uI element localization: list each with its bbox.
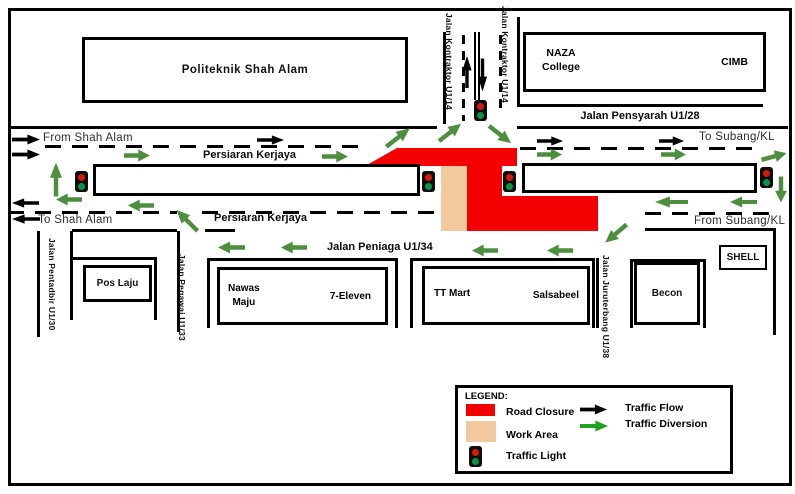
legend-title: LEGEND: [465,391,508,402]
kontraktor-road-median-line1 [474,32,476,100]
traffic-diversion-arrow-icon [580,420,608,432]
red-lamp [472,449,479,456]
green-lamp [763,179,770,186]
legend-road-closure-label: Road Closure [506,406,574,418]
road-label-jalan-pensyarah: Jalan Pensyarah U1/28 [517,110,763,122]
pentadbir-road-left-edge [37,231,40,337]
red-lamp [78,174,85,181]
road-label-jalan-kontraktor-left: Jalan Kontraktor U1/14 [444,13,454,123]
road-edge-top-west [8,126,437,129]
traffic-light-closure-west [422,171,435,192]
road-edge-bottom-east [645,228,776,231]
building-cimb-label: CIMB [721,56,748,68]
building-pos-laju: Pos Laju [83,265,152,302]
building-nawas-7eleven: Nawas Maju 7-Eleven [217,267,388,325]
traffic-light-east-junction [760,167,773,188]
building-ttmart-salsabeel: TT Mart Salsabeel [422,266,590,325]
legend-traffic-light-label: Traffic Light [506,450,566,462]
building-politeknik: Politeknik Shah Alam [82,37,408,103]
direction-to-subang: To Subang/KL [699,131,775,143]
green-lamp [472,458,479,465]
red-lamp [506,174,513,181]
median-island-west [93,164,420,196]
road-label-persiaran-kerjaya-west: Persiaran Kerjaya [214,212,307,224]
road-edge-bottom-stub [205,229,235,232]
building-nawas-label-line1: Nawas [228,282,260,296]
red-lamp [477,103,484,110]
building-nawas-label-line2: Maju [228,296,260,310]
building-becon-label: Becon [652,288,683,299]
building-naza-label-line2: College [542,60,580,74]
road-label-jalan-kontraktor-right: Jalan Kontraktor U1/14 [500,6,510,114]
building-shell: SHELL [719,245,767,270]
pentadbir-road-right-edge [70,231,73,259]
juruterbang-road-left-edge [596,258,599,328]
legend-panel: LEGEND: Road Closure Work Area Traffic L… [455,385,733,474]
green-lamp [506,183,513,190]
road-edge-right-vertical [773,228,776,335]
road-label-jalan-pegawai: Jalan Pegawai U1/33 [177,254,187,370]
legend-work-area-label: Work Area [506,429,558,441]
lane-dash-eastbound-east [520,147,762,150]
road-label-jalan-peniaga: Jalan Peniaga U1/34 [327,241,433,253]
red-lamp [763,170,770,177]
direction-from-shah-alam: From Shah Alam [43,132,133,144]
work-area [441,166,467,231]
building-naza-cimb: NAZA College CIMB [523,32,766,92]
legend-traffic-flow-label: Traffic Flow [625,402,683,414]
road-edge-bottom-west [72,229,177,232]
building-salsabeel-label: Salsabeel [533,290,579,301]
building-becon: Becon [634,262,700,325]
green-lamp [425,183,432,190]
road-edge-top-east [517,126,788,129]
traffic-light-closure-east [503,171,516,192]
road-label-jalan-juruterbang: Jalan Juruterbang U1/38 [601,255,611,377]
work-area-swatch [466,421,496,442]
traffic-light-kontraktor [474,100,487,121]
traffic-flow-arrow-icon [580,404,607,415]
direction-to-shah-alam: To Shah Alam [38,214,113,226]
road-label-persiaran-kerjaya-east: Persiaran Kerjaya [203,149,296,161]
legend-traffic-diversion-label: Traffic Diversion [625,418,707,430]
red-lamp [425,174,432,181]
building-politeknik-label: Politeknik Shah Alam [182,64,309,76]
green-lamp [477,112,484,119]
traffic-light-icon [469,446,482,467]
median-island-east [522,163,757,193]
building-ttmart-label: TT Mart [434,288,470,299]
building-shell-label: SHELL [727,252,760,263]
road-closure-swatch [466,404,495,416]
kontraktor-lane-dash-left [462,35,465,121]
lane-dash-eastbound-west [45,145,365,148]
building-naza-label-line1: NAZA [542,46,580,60]
direction-from-subang: From Subang/KL [694,215,785,227]
traffic-diversion-map: { "colors": { "road_closure": "#F50000",… [0,0,795,494]
road-label-jalan-pentadbir: Jalan Pentadbir U1/30 [47,238,57,354]
traffic-light-west-junction [75,171,88,192]
green-lamp [78,183,85,190]
building-7eleven-label: 7-Eleven [330,291,371,302]
kontraktor-road-median-line2 [478,32,480,100]
building-pos-laju-label: Pos Laju [97,278,139,289]
